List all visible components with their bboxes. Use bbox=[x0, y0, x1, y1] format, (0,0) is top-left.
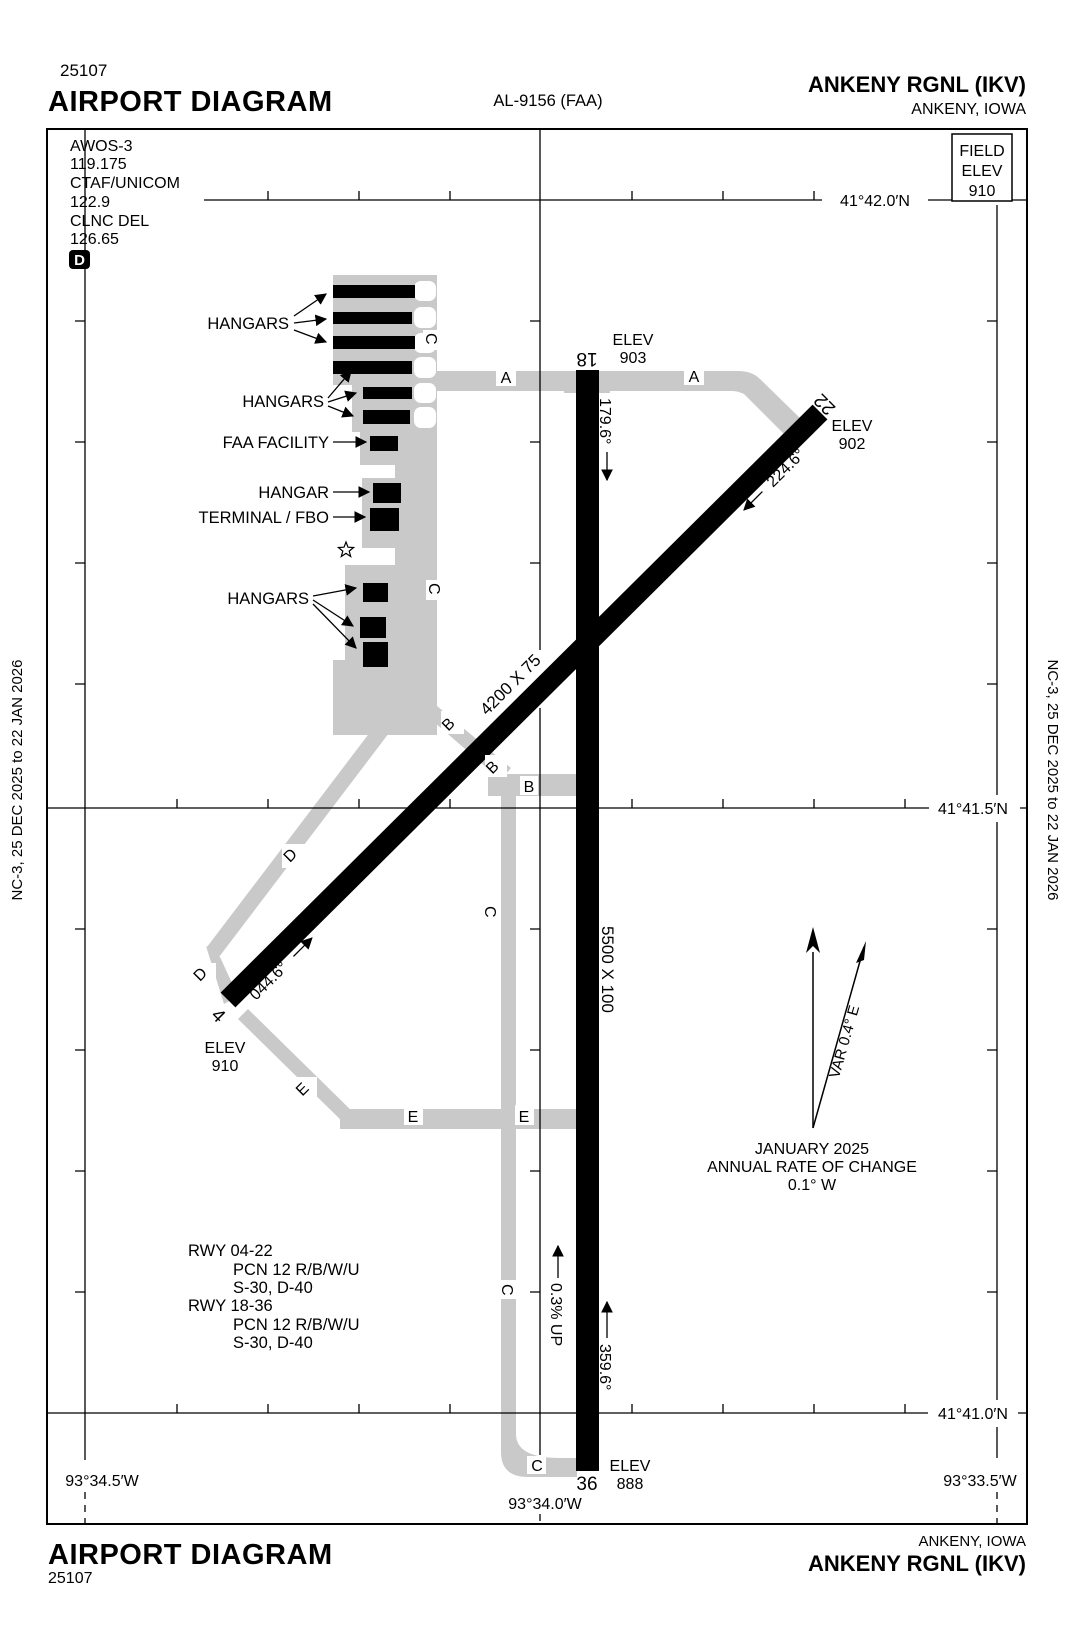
hangars-label-south: HANGARS bbox=[227, 590, 309, 608]
latitude-line-41-41-0 bbox=[47, 1404, 1027, 1413]
faa-facility-label: FAA FACILITY bbox=[223, 434, 329, 452]
apron-notch-1 bbox=[414, 281, 436, 301]
ctaf-frequency: 122.9 bbox=[70, 194, 110, 211]
footer-city: ANKENY, IOWA bbox=[918, 1533, 1026, 1550]
field-elev-line1: FIELD bbox=[959, 143, 1004, 160]
hangars-north-arrow-2-icon bbox=[294, 319, 326, 323]
footer-procedure-number: 25107 bbox=[48, 1570, 93, 1587]
taxiway-a-label-2: A bbox=[689, 369, 700, 386]
elev-4-label: ELEV bbox=[205, 1040, 246, 1057]
taxiway-e-label-2: E bbox=[408, 1109, 419, 1126]
elev-18-label: ELEV bbox=[613, 332, 654, 349]
apron-south-foot bbox=[333, 660, 437, 735]
clearance-delivery-badge-letter: D bbox=[74, 252, 85, 269]
latitude-label-41-41-5: 41°41.5′N bbox=[938, 801, 1008, 818]
rwy-18-36-strength: S-30, D-40 bbox=[233, 1334, 313, 1352]
hangars-label-mid: HANGARS bbox=[242, 393, 324, 411]
hangar-row-5 bbox=[363, 387, 412, 399]
hangar-label: HANGAR bbox=[258, 484, 329, 502]
field-elevation-box: FIELD ELEV 910 bbox=[952, 134, 1012, 201]
taxiway-c-label-3: C bbox=[481, 906, 498, 918]
runway-number-18: 18 bbox=[576, 348, 597, 369]
runway-slope: 0.3% UP bbox=[547, 1283, 564, 1346]
elev-18-value: 903 bbox=[620, 350, 647, 367]
taxiway-a-label-1: A bbox=[501, 370, 512, 387]
terminal-fbo-building bbox=[370, 508, 399, 531]
rwy-04-22-data-title: RWY 04-22 bbox=[188, 1242, 273, 1260]
field-elev-value: 910 bbox=[969, 183, 996, 200]
runway-18-36-dimensions: 5500 X 100 bbox=[598, 926, 617, 1013]
hangar-row-2 bbox=[333, 312, 412, 324]
apron-notch-5 bbox=[414, 383, 436, 403]
awos-frequency: 119.175 bbox=[70, 156, 127, 173]
procedure-number-top: 25107 bbox=[60, 61, 107, 80]
north-arrow-group: VAR 0.4° E bbox=[806, 927, 866, 1128]
field-elev-line2: ELEV bbox=[962, 163, 1003, 180]
true-north-arrowhead-icon bbox=[806, 927, 820, 953]
annual-rate-value: 0.1° W bbox=[788, 1177, 837, 1194]
apron-notch-2 bbox=[414, 307, 436, 328]
taxiway-e-east bbox=[340, 1109, 578, 1129]
south-hangar-2 bbox=[360, 617, 386, 638]
taxiway-c-label-5: C bbox=[531, 1458, 543, 1475]
beacon-star-icon bbox=[338, 542, 353, 557]
footer-title: AIRPORT DIAGRAM bbox=[48, 1539, 333, 1571]
runway-18-36 bbox=[576, 370, 599, 1471]
longitude-label-93-34-5: 93°34.5′W bbox=[65, 1473, 139, 1490]
hangar-row-6 bbox=[363, 410, 410, 424]
rwy-04-22-pcn: PCN 12 R/B/W/U bbox=[233, 1261, 360, 1279]
longitude-label-93-34-0: 93°34.0′W bbox=[508, 1496, 582, 1513]
awos-label: AWOS-3 bbox=[70, 138, 133, 155]
edition-text-left: NC-3, 25 DEC 2025 to 22 JAN 2026 bbox=[9, 660, 26, 901]
taxiway-c-label-1: C bbox=[422, 333, 439, 345]
airport-city: ANKENY, IOWA bbox=[911, 101, 1026, 118]
latitude-label-41-42-0: 41°42.0′N bbox=[840, 193, 910, 210]
hangar-row-4 bbox=[333, 361, 412, 374]
hangars-north-arrow-1-icon bbox=[294, 294, 326, 316]
rwy-18-36-data-title: RWY 18-36 bbox=[188, 1297, 273, 1315]
annual-rate-label: ANNUAL RATE OF CHANGE bbox=[707, 1159, 917, 1176]
taxiway-c-label-2: C bbox=[425, 583, 442, 595]
elev-36-value: 888 bbox=[617, 1476, 644, 1493]
footer-airport-name: ANKENY RGNL (IKV) bbox=[808, 1551, 1026, 1576]
chart-reference: AL-9156 (FAA) bbox=[493, 92, 602, 110]
diagram-canvas: 25107 AIRPORT DIAGRAM AL-9156 (FAA) ANKE… bbox=[0, 0, 1076, 1650]
hangar-row-1 bbox=[333, 285, 415, 298]
heading-18: 179.6° bbox=[596, 398, 613, 444]
airport-name: ANKENY RGNL (IKV) bbox=[808, 72, 1026, 97]
elev-4-value: 910 bbox=[212, 1058, 239, 1075]
longitude-label-93-33-5: 93°33.5′W bbox=[943, 1473, 1017, 1490]
clnc-del-label: CLNC DEL bbox=[70, 213, 149, 230]
hangars-north-arrow-3-icon bbox=[294, 330, 326, 342]
rwy-04-22-strength: S-30, D-40 bbox=[233, 1279, 313, 1297]
variation-label: VAR 0.4° E bbox=[826, 1003, 863, 1080]
variation-date: JANUARY 2025 bbox=[755, 1141, 869, 1158]
hangar-building bbox=[373, 483, 401, 503]
elev-36-label: ELEV bbox=[610, 1458, 651, 1475]
apron-notch-6 bbox=[414, 407, 436, 428]
taxiway-a bbox=[437, 371, 803, 437]
hangars-label-north: HANGARS bbox=[207, 315, 289, 333]
airport-diagram-page: 25107 AIRPORT DIAGRAM AL-9156 (FAA) ANKE… bbox=[0, 0, 1076, 1650]
latitude-label-41-41-0: 41°41.0′N bbox=[938, 1406, 1008, 1423]
faa-facility-building bbox=[370, 436, 398, 451]
south-hangar-1 bbox=[363, 583, 388, 602]
magnetic-variation-arrowhead-icon bbox=[856, 941, 866, 963]
rwy-18-36-pcn: PCN 12 R/B/W/U bbox=[233, 1316, 360, 1334]
hangars-mid-arrow-2-icon bbox=[328, 393, 356, 402]
runway-data-block: RWY 04-22 PCN 12 R/B/W/U S-30, D-40 RWY … bbox=[188, 1242, 360, 1352]
ctaf-unicom-label: CTAF/UNICOM bbox=[70, 175, 180, 192]
runway-number-36: 36 bbox=[576, 1474, 597, 1495]
longitude-line-93-34-5 bbox=[75, 129, 85, 1460]
hangars-mid-arrow-3-icon bbox=[328, 406, 353, 416]
runway-number-4: 4 bbox=[207, 1005, 230, 1028]
taxiway-c-label-4: C bbox=[498, 1284, 515, 1296]
taxiway-e-label-3: E bbox=[519, 1109, 530, 1126]
clnc-frequency: 126.65 bbox=[70, 231, 119, 248]
longitude-line-93-33-5 bbox=[987, 205, 997, 1458]
hangar-row-3 bbox=[333, 336, 415, 349]
edition-text-right: NC-3, 25 DEC 2025 to 22 JAN 2026 bbox=[1044, 660, 1061, 901]
latitude-line-41-41-5 bbox=[47, 799, 1027, 808]
terminal-fbo-label: TERMINAL / FBO bbox=[199, 509, 330, 527]
apron-notch-4 bbox=[414, 357, 436, 378]
south-hangar-3 bbox=[363, 642, 388, 667]
elev-22-label: ELEV bbox=[832, 418, 873, 435]
elev-22-value: 902 bbox=[839, 436, 866, 453]
page-title: AIRPORT DIAGRAM bbox=[48, 86, 333, 118]
taxiway-b-label-3: B bbox=[524, 779, 535, 796]
taxiway-c-parallel bbox=[501, 782, 516, 1434]
heading-36: 359.6° bbox=[596, 1344, 613, 1390]
